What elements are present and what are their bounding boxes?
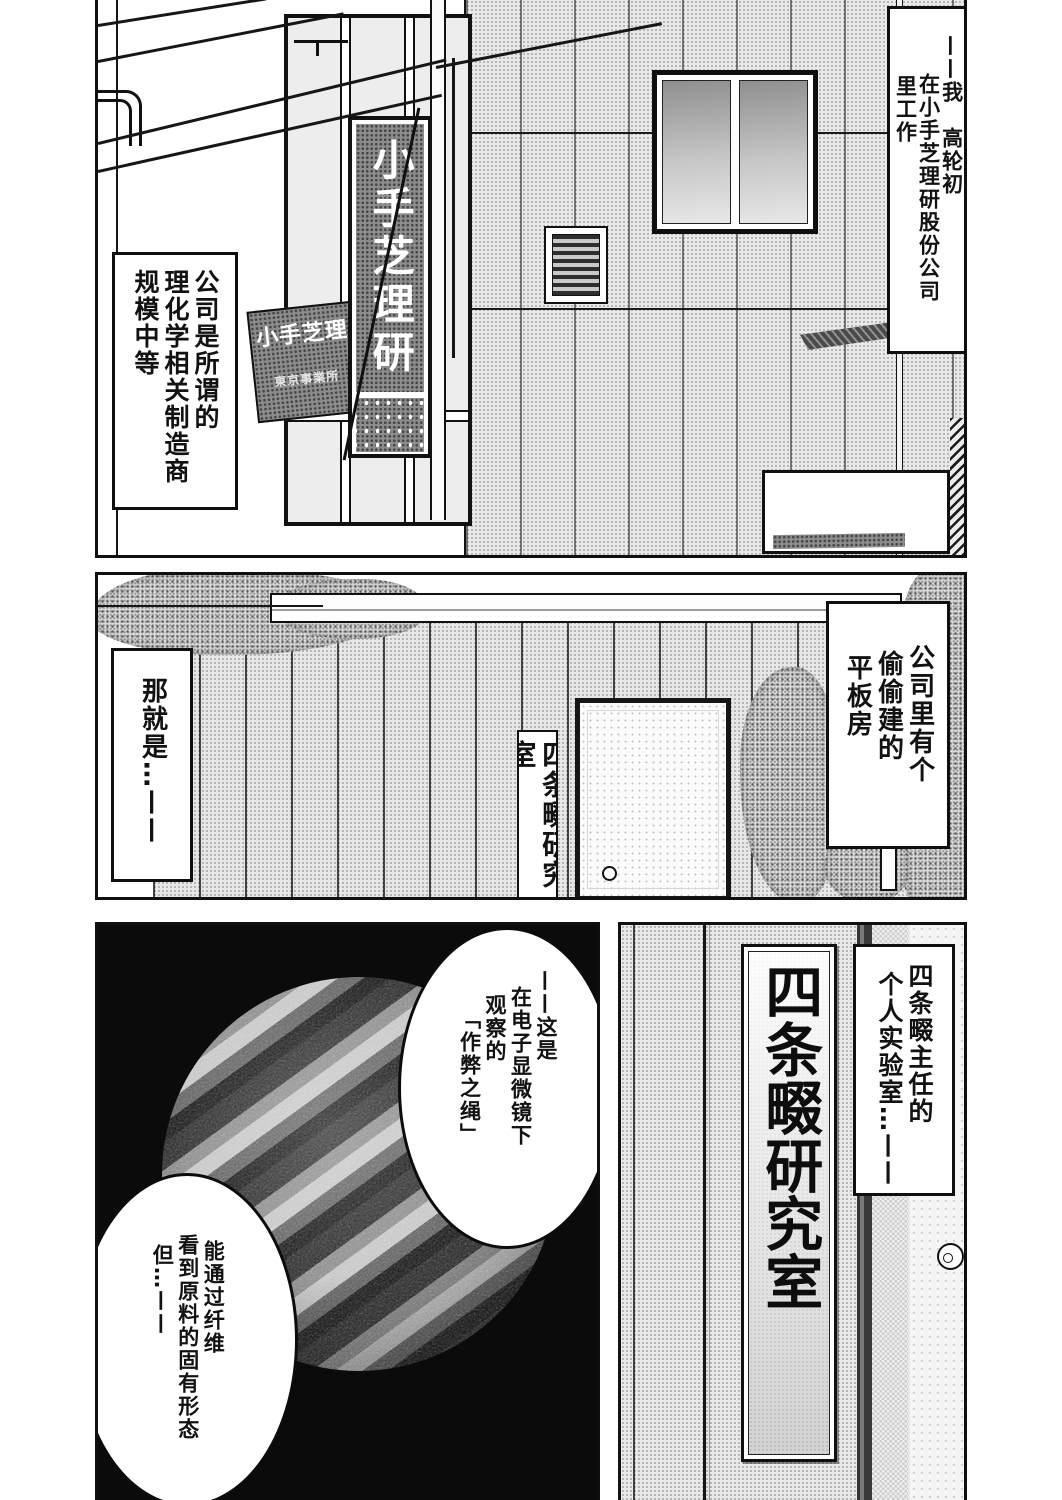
wall-panel-line <box>709 925 710 1500</box>
wall-panel-line <box>633 925 635 1500</box>
narration-line: 理化学相关制造商 <box>161 255 189 485</box>
manga-page: 小手芝理 東京事業所 小手芝理研 ——我 高轮初 在小手芝理研股份公司 里工作 … <box>0 0 1062 1500</box>
speech-line: ——这是 <box>534 964 558 1147</box>
narration-line: 个人实验室…—— <box>875 947 903 1187</box>
narration-box-intro: ——我 高轮初 在小手芝理研股份公司 里工作 <box>887 6 967 354</box>
narration-text: 公司是所谓的 理化学相关制造商 规模中等 <box>129 255 221 485</box>
speech-line: 在电子显微镜下 <box>508 964 532 1147</box>
narration-line: 规模中等 <box>131 255 159 485</box>
sign-pole <box>430 0 446 520</box>
speech-line: 能通过纤维 <box>201 1210 225 1441</box>
roof-eave-line <box>98 0 266 26</box>
background-line <box>98 605 323 607</box>
blank-signboard <box>762 470 950 554</box>
panel-prefab-hut: 四条畷研究室 公司里有个 偷偷建的 平板房 那就是…—— <box>95 572 967 900</box>
speech-line: 看到原料的固有形态 <box>175 1210 199 1441</box>
panel-microscope: ——这是 在电子显微镜下 观察的 「作弊之绳」 能通过纤维 看到原料的固有形态 … <box>95 922 600 1500</box>
wall-bracket <box>294 40 348 43</box>
narration-line: 公司里有个 <box>905 604 934 784</box>
company-sign-text: 小手芝理研 <box>366 138 414 378</box>
pole-rod <box>452 58 455 358</box>
narration-line: ——我 高轮初 <box>941 15 963 303</box>
vent-grille <box>544 226 608 304</box>
doorknob-icon <box>602 866 617 881</box>
window-pane <box>662 80 731 224</box>
speech-line: 观察的 <box>482 964 506 1147</box>
lab-plaque-face: 四条畷研究室 <box>748 951 830 1455</box>
doorknob-icon <box>937 1243 964 1270</box>
narration-box-that-is: 那就是…—— <box>111 648 193 882</box>
speech-text: ——这是 在电子显微镜下 观察的 「作弊之绳」 <box>455 930 559 1147</box>
panel-street-exterior: 小手芝理 東京事業所 小手芝理研 ——我 高轮初 在小手芝理研股份公司 里工作 … <box>95 0 967 558</box>
speech-text: 能通过纤维 看到原料的固有形态 但…—— <box>148 1176 227 1441</box>
narration-line: 公司是所谓的 <box>191 255 219 485</box>
narration-box-lab: 四条畷主任的 个人实验室…—— <box>853 944 955 1196</box>
lab-plaque-text: 四条畷研究室 <box>751 952 828 1454</box>
hut-door-panel <box>587 710 719 889</box>
narration-line: 偷偷建的 <box>873 604 902 784</box>
narration-text: ——我 高轮初 在小手芝理研股份公司 里工作 <box>893 9 963 303</box>
narration-box-hut: 公司里有个 偷偷建的 平板房 <box>826 601 950 849</box>
hut-roof-beam <box>270 593 902 623</box>
narration-text: 四条畷主任的 个人实验室…—— <box>873 947 935 1187</box>
panel-lab-door: 四条畷研究室 四条畷主任的 个人实验室…—— <box>618 922 967 1500</box>
narration-line: 里工作 <box>894 15 916 303</box>
lab-door-sign: 四条畷研究室 <box>517 730 558 900</box>
hatched-corner <box>950 418 967 558</box>
narration-line: 平板房 <box>842 604 871 784</box>
speech-line: 「作弊之绳」 <box>457 964 481 1147</box>
lab-plaque: 四条畷研究室 <box>741 944 837 1462</box>
window-pane <box>739 80 808 224</box>
signboard-shadow-strip <box>773 533 905 549</box>
narration-line: 在小手芝理研股份公司 <box>917 15 939 303</box>
wall-panel-line <box>703 925 706 1500</box>
narration-text: 公司里有个 偷偷建的 平板房 <box>840 604 935 784</box>
speech-bubble-microscope: ——这是 在电子显微镜下 观察的 「作弊之绳」 <box>398 927 600 1249</box>
company-sign-small-text: 小手芝理 <box>254 311 349 352</box>
wall-bracket-post <box>316 40 319 56</box>
speech-line: 但…—— <box>150 1210 174 1441</box>
narration-line: 那就是…—— <box>137 651 166 845</box>
hut-door <box>575 698 731 900</box>
narration-line: 四条畷主任的 <box>905 947 933 1187</box>
narration-box-company: 公司是所谓的 理化学相关制造商 规模中等 <box>112 252 238 510</box>
building-window <box>652 70 818 234</box>
narration-text: 那就是…—— <box>135 651 168 845</box>
company-sign-small-subtext: 東京事業所 <box>260 365 353 392</box>
lab-door-sign-text: 四条畷研究室 <box>517 732 558 900</box>
vent-grille-slats <box>552 234 600 296</box>
company-sign-subpanel <box>356 398 424 452</box>
company-sign-main: 小手芝理研 <box>348 116 432 458</box>
company-sign-small: 小手芝理 東京事業所 <box>246 301 363 423</box>
